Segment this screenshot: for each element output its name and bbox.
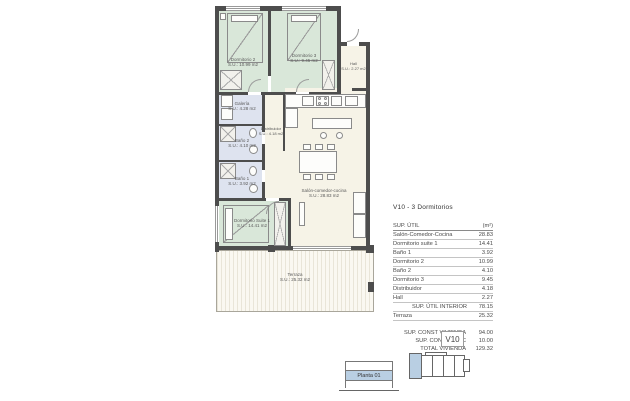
- chair-icon: [327, 144, 335, 150]
- wall-segment: [359, 42, 370, 46]
- chair-icon: [303, 174, 311, 180]
- window: [226, 6, 260, 11]
- floor-band-upper: [346, 362, 392, 370]
- room-label-terraza: Terraza S.U.: 25.32 m2: [270, 272, 320, 283]
- room-area: S.U.: 14.41 m2: [226, 223, 278, 228]
- toilet-icon: [249, 166, 257, 176]
- wall-segment: [337, 6, 341, 96]
- wall-segment: [288, 201, 291, 250]
- chair-icon: [315, 174, 323, 180]
- row-value: 4.18: [473, 286, 493, 292]
- row-value: 25.32: [473, 313, 493, 319]
- room-label-galeria: Galería S.U.: 4.28 m2: [223, 101, 261, 112]
- row-label: Baño 1: [393, 250, 411, 256]
- row-value: 9.45: [473, 277, 493, 283]
- header-unit: (m²): [473, 223, 493, 229]
- burner-icon: [324, 97, 327, 100]
- row-label: Terraza: [393, 313, 412, 319]
- unit-title: V10 - 3 Dormitorios: [393, 204, 493, 211]
- key-plan-notch: [463, 359, 470, 372]
- nightstand-icon: [220, 13, 226, 20]
- wall-segment: [262, 92, 265, 201]
- wardrobe-icon: [220, 70, 242, 90]
- table-row: Dormitorio 3 9.45: [393, 276, 493, 285]
- row-label: Baño 2: [393, 268, 411, 274]
- room-label-dormitorio-3: Dormitorio 3 S.U.: 9.45 m2: [282, 53, 326, 64]
- wardrobe-icon: [322, 60, 335, 90]
- unit-code-badge: V10: [441, 331, 464, 347]
- table-header: SUP. ÚTIL (m²): [393, 222, 493, 231]
- pillar: [368, 282, 374, 292]
- room-label-dormitorio-2: Dormitorio 2 S.U.: 10.99 m2: [221, 57, 265, 68]
- pillow-icon: [291, 15, 317, 22]
- room-area: S.U.: 3.92 m2: [223, 181, 261, 186]
- table-row: Baño 2 4.10: [393, 267, 493, 276]
- floor-band-selected[interactable]: Planta 01: [346, 370, 392, 381]
- summary-value: 94.00: [473, 330, 493, 336]
- room-label-salon: Salón-comedor-cocina S.U.: 28.83 m2: [298, 188, 350, 199]
- key-plan-divider: [432, 356, 433, 376]
- row-label: SUP. ÚTIL INTERIOR: [393, 304, 467, 310]
- stool-icon: [336, 132, 343, 139]
- row-value: 10.99: [473, 259, 493, 265]
- row-label: Distribuidor: [393, 286, 422, 292]
- key-plan-divider: [443, 356, 444, 376]
- sofa-icon: [353, 192, 366, 214]
- wall-segment: [352, 88, 366, 91]
- room-label-suite: Dormitorio Suite 1 S.U.: 14.41 m2: [226, 218, 278, 229]
- room-area: S.U.: 28.83 m2: [298, 193, 350, 198]
- room-label-bano-2: Baño 2 S.U.: 4.10 m2: [223, 138, 261, 149]
- pillow-icon: [231, 15, 258, 22]
- table-row: Terraza 25.32: [393, 312, 493, 321]
- room-area: S.U.: 4.28 m2: [223, 106, 261, 111]
- table-row: Salón-Comedor-Cocina 28.83: [393, 231, 493, 240]
- pillar: [268, 245, 275, 252]
- sink-icon: [331, 96, 342, 106]
- room-area: S.U.: 25.32 m2: [270, 277, 320, 282]
- kitchen-island: [312, 118, 352, 129]
- room-area: S.U.: 9.45 m2: [282, 58, 326, 63]
- wall-segment: [219, 160, 263, 162]
- room-label-distribuidor: Distribuidor S.U.: 4.18 m2: [256, 127, 286, 137]
- header-label: SUP. ÚTIL: [393, 223, 419, 229]
- fridge-icon: [345, 96, 358, 106]
- row-value: 3.92: [473, 250, 493, 256]
- terrace-door: [293, 246, 351, 250]
- door-gap: [248, 92, 261, 95]
- row-value: 2.27: [473, 295, 493, 301]
- chair-icon: [303, 144, 311, 150]
- burner-icon: [318, 102, 321, 105]
- table-row: Dormitorio 2 10.99: [393, 258, 493, 267]
- floor-selector[interactable]: Planta 01: [345, 361, 393, 388]
- door-gap: [262, 170, 265, 182]
- row-label: Dormitorio suite 1: [393, 241, 438, 247]
- summary-value: 129.32: [473, 346, 493, 352]
- table-row: Baño 1 3.92: [393, 249, 493, 258]
- kitchen-cabinet: [285, 108, 298, 128]
- key-plan-unit-highlight[interactable]: [409, 353, 422, 379]
- entry-door-arc: [347, 29, 359, 42]
- room-distribuidor: [262, 92, 285, 198]
- chair-icon: [315, 144, 323, 150]
- table-row: Hall 2.27: [393, 294, 493, 303]
- row-value: 4.10: [473, 268, 493, 274]
- room-area: S.U.: 2.27 m2: [340, 67, 367, 72]
- row-value: 78.15: [473, 304, 493, 310]
- row-label: Salón-Comedor-Cocina: [393, 232, 452, 238]
- wall-segment: [366, 42, 370, 250]
- room-label-bano-1: Baño 1 S.U.: 3.92 m2: [223, 176, 261, 187]
- pillar: [366, 245, 374, 253]
- row-value: 14.41: [473, 241, 493, 247]
- row-label: Dormitorio 2: [393, 259, 424, 265]
- row-value: 28.83: [473, 232, 493, 238]
- entry-door-gap: [347, 42, 359, 46]
- room-area: S.U.: 10.99 m2: [221, 62, 265, 67]
- microwave-icon: [302, 96, 314, 106]
- ground-line: [339, 390, 399, 391]
- window: [282, 6, 326, 11]
- room-area: S.U.: 4.10 m2: [223, 143, 261, 148]
- tv-bench-icon: [299, 202, 305, 226]
- dining-table: [299, 151, 337, 173]
- chair-icon: [327, 174, 335, 180]
- row-label: Hall: [393, 295, 403, 301]
- summary-value: 10.00: [473, 338, 493, 344]
- burner-icon: [324, 102, 327, 105]
- stool-icon: [320, 132, 327, 139]
- burner-icon: [318, 97, 321, 100]
- table-row: Dormitorio suite 1 14.41: [393, 240, 493, 249]
- floor-band-lower: [346, 381, 392, 389]
- key-plan-divider: [454, 356, 455, 376]
- sofa-icon: [353, 214, 366, 238]
- wall-segment: [219, 198, 291, 201]
- floorplan-page: Dormitorio 2 S.U.: 10.99 m2 Dormitorio 3…: [0, 0, 630, 401]
- wall-segment: [268, 6, 271, 76]
- window: [215, 206, 219, 242]
- table-row-subtotal: SUP. ÚTIL INTERIOR 78.15: [393, 303, 493, 312]
- room-label-hall: Hall S.U.: 2.27 m2: [340, 62, 367, 72]
- row-label: Dormitorio 3: [393, 277, 424, 283]
- table-row: Distribuidor 4.18: [393, 285, 493, 294]
- room-area: S.U.: 4.18 m2: [256, 132, 286, 137]
